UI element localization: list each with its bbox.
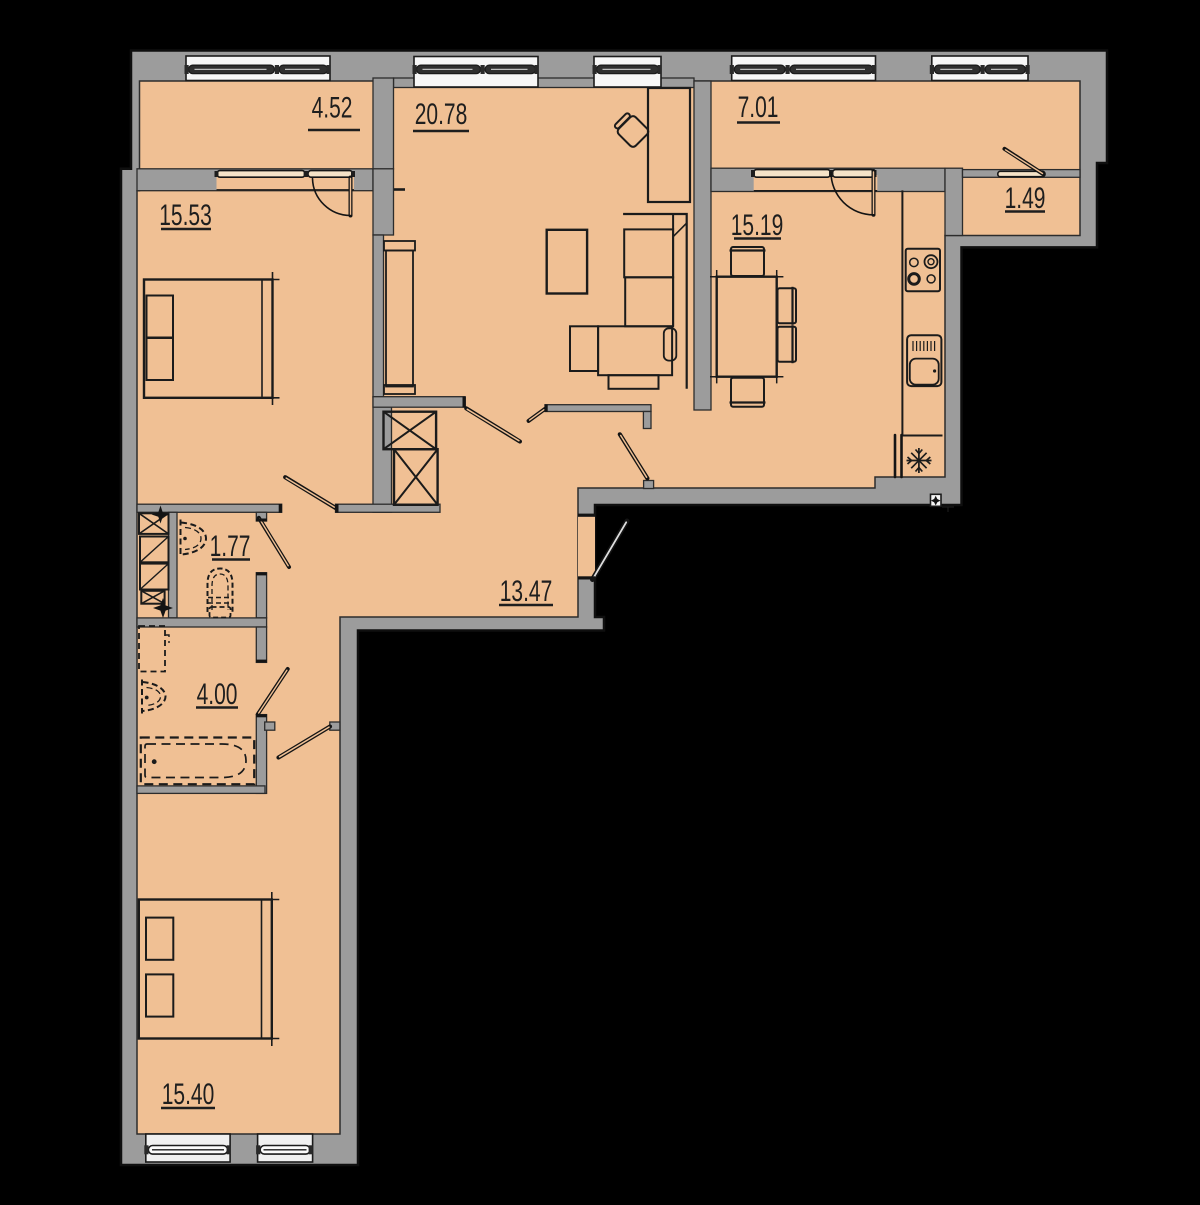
svg-text:7.01: 7.01 (738, 92, 779, 124)
svg-text:13.47: 13.47 (500, 576, 553, 608)
svg-text:15.19: 15.19 (731, 210, 784, 242)
svg-text:1.77: 1.77 (210, 531, 251, 563)
svg-text:15.40: 15.40 (162, 1079, 215, 1111)
svg-text:15.53: 15.53 (159, 200, 212, 232)
svg-text:4.52: 4.52 (312, 92, 353, 124)
svg-text:20.78: 20.78 (415, 99, 468, 131)
svg-text:1.49: 1.49 (1005, 183, 1046, 215)
svg-text:4.00: 4.00 (197, 679, 238, 711)
